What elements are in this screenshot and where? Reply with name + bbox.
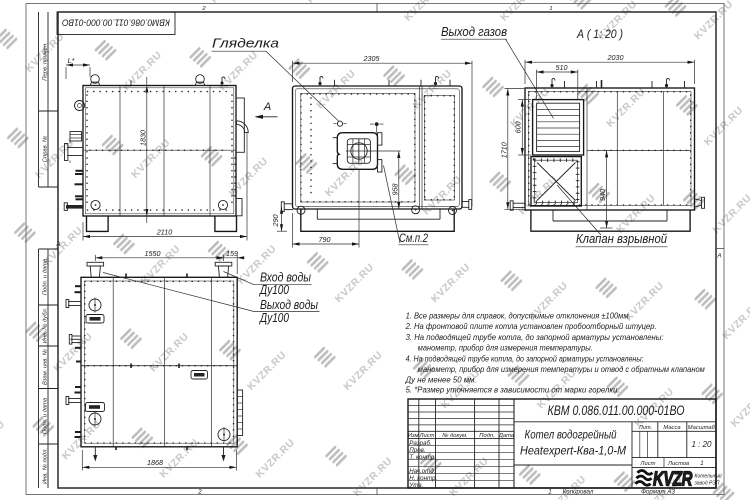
svg-text:2: 2 <box>197 489 202 496</box>
svg-text:1. Все размеры для справок, до: 1. Все размеры для справок, допустимые о… <box>406 312 631 321</box>
svg-text:завод РЭП: завод РЭП <box>694 481 720 487</box>
svg-text:Масса: Масса <box>663 425 681 431</box>
svg-text:Изм: Изм <box>408 433 419 439</box>
svg-text:1830: 1830 <box>139 130 148 146</box>
svg-text:А ( 1: 20 ): А ( 1: 20 ) <box>576 27 623 41</box>
svg-text:Инв. № дубл.: Инв. № дубл. <box>43 308 49 344</box>
svg-text:790: 790 <box>319 235 331 244</box>
svg-text:КВМ0.086.011.00.000-01ВО: КВМ0.086.011.00.000-01ВО <box>61 17 170 28</box>
svg-text:3. На подводящей трубе котла,: 3. На подводящей трубе котла, до запорно… <box>406 333 664 342</box>
svg-text:Дата: Дата <box>498 433 515 439</box>
svg-text:2305: 2305 <box>363 54 381 63</box>
svg-text:КВМ 0.086.011.00.000-01ВО: КВМ 0.086.011.00.000-01ВО <box>548 403 685 418</box>
svg-text:Лит.: Лит. <box>638 425 653 431</box>
svg-text:Лист: Лист <box>640 461 656 467</box>
svg-text:Утв.: Утв. <box>408 482 423 489</box>
svg-text:А: А <box>716 253 721 260</box>
svg-text:1: 1 <box>700 460 703 467</box>
svg-text:1868: 1868 <box>147 458 163 467</box>
svg-text:2110: 2110 <box>156 227 172 236</box>
svg-text:Перв. примен.: Перв. примен. <box>43 42 49 81</box>
svg-text:940: 940 <box>598 189 607 201</box>
svg-text:Листов: Листов <box>667 461 689 467</box>
svg-text:5. *Размер уточняется в зависи: 5. *Размер уточняется в зависимости от м… <box>406 386 620 395</box>
svg-text:1550: 1550 <box>145 249 161 258</box>
svg-text:Н. контр.: Н. контр. <box>409 475 437 482</box>
svg-text:Лист: Лист <box>419 433 435 439</box>
svg-text:290: 290 <box>271 215 280 228</box>
svg-text:Выход газов: Выход газов <box>441 24 507 39</box>
svg-text:Гляделка: Гляделка <box>212 36 279 51</box>
svg-text:Подп. и дата: Подп. и дата <box>43 258 49 295</box>
svg-text:1 : 20: 1 : 20 <box>691 440 712 449</box>
svg-text:См.п.2: См.п.2 <box>399 231 428 245</box>
svg-text:Подп. и дата: Подп. и дата <box>43 397 49 434</box>
svg-text:600: 600 <box>514 121 523 133</box>
svg-text:Инв. № подл.: Инв. № подл. <box>43 448 49 484</box>
svg-text:Котельный: Котельный <box>695 473 722 480</box>
svg-text:А: А <box>55 241 60 248</box>
svg-text:манометр, прибор для измерения: манометр, прибор для измерения температу… <box>418 365 705 374</box>
svg-text:L*: L* <box>68 56 75 65</box>
svg-text:Клапан взрывной: Клапан взрывной <box>576 231 667 246</box>
svg-text:Котел водогрейный: Котел водогрейный <box>525 430 618 442</box>
svg-text:Пров.: Пров. <box>409 447 425 454</box>
svg-text:№ докум.: № докум. <box>442 433 468 439</box>
svg-text:Справ. №: Справ. № <box>43 136 49 162</box>
svg-text:Разраб.: Разраб. <box>409 440 431 447</box>
svg-text:А: А <box>263 101 271 113</box>
svg-text:2030: 2030 <box>607 53 624 62</box>
svg-text:KVZR: KVZR <box>653 469 693 491</box>
svg-text:1: 1 <box>548 489 551 496</box>
svg-text:Масштаб: Масштаб <box>688 425 716 431</box>
svg-text:манометр, прибор для измерения: манометр, прибор для измерения температу… <box>418 344 593 353</box>
svg-text:1710: 1710 <box>499 142 508 158</box>
svg-text:510: 510 <box>556 63 568 72</box>
svg-text:Нач.отд.: Нач.отд. <box>409 468 435 475</box>
svg-text:Ду100: Ду100 <box>258 310 289 325</box>
svg-text:Копировал: Копировал <box>563 489 594 496</box>
svg-text:2. На фронтовой плите котла ус: 2. На фронтовой плите котла установлен п… <box>405 322 657 331</box>
svg-text:4. На подводящей трубе котла,: 4. На подводящей трубе котла, до запорно… <box>406 354 644 363</box>
svg-text:Т. контр.: Т. контр. <box>409 454 436 461</box>
svg-text:159: 159 <box>226 249 238 258</box>
svg-text:958: 958 <box>391 184 400 196</box>
svg-text:Ду не менее 50 мм.: Ду не менее 50 мм. <box>405 376 477 385</box>
svg-text:Взам. инв. №: Взам. инв. № <box>43 349 49 385</box>
svg-text:Heatexpert-Ква-1,0-М: Heatexpert-Ква-1,0-М <box>520 446 626 458</box>
svg-text:Подп.: Подп. <box>479 433 494 439</box>
svg-text:1: 1 <box>549 6 552 12</box>
svg-text:Ду100: Ду100 <box>258 282 289 297</box>
